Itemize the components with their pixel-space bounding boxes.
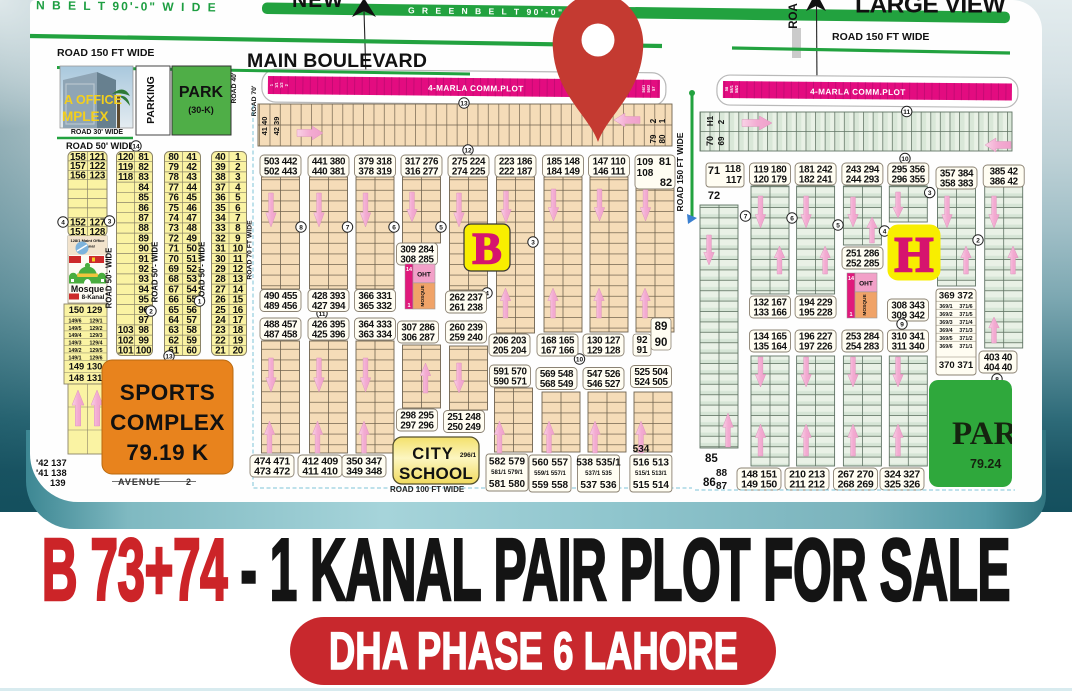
svg-text:69: 69 (717, 136, 726, 145)
svg-text:42 39: 42 39 (272, 117, 281, 136)
svg-text:N B E L T 90'-0" W I D E: N B E L T 90'-0" W I D E (36, 0, 218, 14)
svg-text:369/6: 369/6 (939, 344, 952, 350)
svg-text:2: 2 (717, 119, 726, 124)
svg-text:440 381: 440 381 (312, 167, 346, 178)
svg-text:70: 70 (705, 136, 715, 146)
svg-text:H: H (895, 226, 934, 282)
svg-text:386 42: 386 42 (990, 177, 1019, 188)
svg-text:489 456: 489 456 (264, 301, 298, 312)
svg-text:ROAD 50'- WIDE: ROAD 50'- WIDE (105, 248, 114, 309)
svg-text:109: 109 (637, 157, 654, 168)
svg-text:149 150: 149 150 (741, 479, 777, 491)
svg-text:ROAD 150 FT WIDE: ROAD 150 FT WIDE (675, 132, 685, 211)
svg-text:182 241: 182 241 (799, 175, 833, 186)
svg-text:88: 88 (716, 468, 728, 479)
svg-text:OHT: OHT (859, 281, 873, 288)
svg-text:195 228: 195 228 (799, 308, 833, 319)
svg-text:MOSQUE: MOSQUE (420, 284, 426, 306)
svg-text:ROAD 150 FT WIDE: ROAD 150 FT WIDE (832, 31, 929, 43)
svg-text:13: 13 (165, 353, 173, 360)
svg-text:135 164: 135 164 (753, 342, 787, 353)
svg-text:250 249: 250 249 (447, 422, 481, 433)
svg-text:SCHOOL: SCHOOL (399, 464, 473, 483)
svg-text:ROAD 40': ROAD 40' (231, 72, 238, 103)
svg-text:14: 14 (132, 143, 140, 150)
svg-text:MOSQUE: MOSQUE (862, 293, 868, 315)
svg-text:ROAD 50'- WIDE: ROAD 50'- WIDE (151, 242, 160, 303)
svg-text:538 535/1: 538 535/1 (576, 458, 621, 469)
svg-text:268 269: 268 269 (838, 479, 874, 491)
svg-text:ROAD 50' WIDE: ROAD 50' WIDE (66, 141, 135, 151)
svg-text:524 505: 524 505 (634, 377, 668, 388)
svg-text:91: 91 (636, 345, 648, 356)
svg-text:79: 79 (649, 134, 658, 143)
svg-text:11: 11 (903, 109, 910, 116)
svg-text:7: 7 (744, 213, 748, 220)
svg-text:274 225: 274 225 (452, 167, 486, 178)
svg-text:7: 7 (346, 224, 350, 231)
svg-text:139: 139 (50, 478, 66, 488)
svg-text:AVENUE: AVENUE (118, 477, 161, 487)
svg-text:21: 21 (215, 346, 226, 357)
svg-text:197 226: 197 226 (799, 342, 833, 353)
svg-text:118: 118 (118, 172, 134, 183)
svg-text:ROA: ROA (788, 3, 800, 29)
svg-text:146 111: 146 111 (593, 167, 626, 178)
svg-text:128/1 Maint Office: 128/1 Maint Office (70, 238, 105, 243)
svg-text:'42 137: '42 137 (36, 458, 67, 468)
svg-text:411 410: 411 410 (302, 466, 338, 478)
svg-text:8: 8 (299, 224, 303, 231)
svg-text:79.19 K: 79.19 K (126, 440, 209, 465)
svg-text:90: 90 (655, 337, 668, 349)
svg-text:559 558: 559 558 (532, 480, 569, 491)
svg-text:404 40: 404 40 (984, 363, 1013, 374)
svg-text:259 240: 259 240 (449, 333, 483, 344)
svg-text:ROAD 50'- WIDE: ROAD 50'- WIDE (198, 242, 207, 303)
svg-text:41 40: 41 40 (260, 117, 269, 136)
svg-text:20: 20 (233, 346, 244, 357)
svg-text:358 383: 358 383 (940, 179, 974, 190)
svg-text:8-Kanal: 8-Kanal (82, 294, 105, 301)
svg-text:487 458: 487 458 (264, 330, 298, 341)
svg-text:PARK: PARK (179, 84, 224, 101)
svg-text:296/1: 296/1 (460, 452, 477, 459)
svg-text:2: 2 (649, 118, 658, 123)
svg-text:12: 12 (464, 147, 472, 154)
svg-text:425 396: 425 396 (312, 330, 346, 341)
svg-text:118: 118 (725, 164, 742, 175)
svg-text:516 513: 516 513 (633, 458, 670, 469)
svg-text:3: 3 (928, 190, 932, 197)
svg-text:ROAD 30' WIDE: ROAD 30' WIDE (71, 129, 124, 136)
svg-text:254 283: 254 283 (846, 342, 880, 353)
svg-text:ROAD 70': ROAD 70' (251, 85, 258, 116)
svg-text:1: 1 (198, 298, 202, 305)
svg-text:(30-K): (30-K) (188, 105, 214, 115)
svg-text:SPORTS: SPORTS (120, 380, 216, 405)
svg-text:100: 100 (136, 346, 152, 357)
svg-text:71: 71 (708, 165, 720, 177)
svg-text:325 326: 325 326 (884, 479, 920, 491)
svg-text:2: 2 (976, 237, 980, 244)
svg-text:123: 123 (90, 171, 106, 182)
svg-text:OHT: OHT (417, 272, 431, 279)
svg-text:581/1 579/1: 581/1 579/1 (491, 470, 523, 476)
svg-text:6: 6 (392, 224, 396, 231)
svg-text:371/1: 371/1 (959, 344, 972, 350)
svg-text:205 204: 205 204 (493, 346, 527, 357)
svg-text:211 212: 211 212 (789, 479, 825, 491)
svg-text:559/1 557/1: 559/1 557/1 (534, 471, 566, 477)
svg-text:427 394: 427 394 (312, 301, 346, 312)
svg-text:14: 14 (848, 276, 855, 282)
svg-text:1: 1 (658, 118, 667, 123)
svg-text:568 549: 568 549 (540, 379, 574, 390)
svg-text:60: 60 (186, 346, 197, 357)
svg-text:296 355: 296 355 (892, 175, 926, 186)
svg-text:4: 4 (883, 228, 887, 235)
svg-text:72: 72 (708, 190, 720, 202)
svg-text:Mosque: Mosque (71, 284, 104, 294)
svg-text:167 166: 167 166 (541, 346, 575, 357)
svg-text:86: 86 (703, 477, 716, 489)
svg-text:117: 117 (726, 175, 743, 186)
svg-text:378 319: 378 319 (358, 167, 392, 178)
svg-text:ROAD 100 FT WIDE: ROAD 100 FT WIDE (390, 485, 465, 494)
svg-text:560 557: 560 557 (532, 458, 569, 469)
svg-text:3: 3 (108, 218, 112, 225)
svg-text:502 443: 502 443 (264, 167, 298, 178)
svg-text:CITY: CITY (412, 445, 454, 463)
svg-text:311 340: 311 340 (892, 342, 926, 353)
svg-text:LARGE VIEW: LARGE VIEW (855, 0, 1007, 19)
svg-text:309 342: 309 342 (891, 311, 925, 322)
svg-text:590 571: 590 571 (493, 377, 527, 388)
svg-text:PARKING: PARKING (145, 76, 157, 124)
svg-text:316 277: 316 277 (405, 167, 439, 178)
svg-text:10: 10 (901, 156, 909, 163)
svg-text:NEW: NEW (292, 0, 344, 12)
svg-text:1: 1 (407, 303, 410, 309)
svg-text:537/1 535: 537/1 535 (585, 471, 612, 477)
svg-text:COMPLEX: COMPLEX (110, 410, 225, 435)
svg-text:222 187: 222 187 (499, 167, 533, 178)
svg-text:369 372: 369 372 (939, 291, 973, 302)
svg-text:252 285: 252 285 (846, 259, 880, 270)
svg-text:129 128: 129 128 (587, 346, 621, 357)
svg-text:581 580: 581 580 (489, 479, 526, 490)
svg-text:85: 85 (705, 453, 718, 465)
svg-text:1: 1 (849, 312, 852, 318)
svg-text:5: 5 (439, 224, 443, 231)
svg-text:537 536: 537 536 (580, 480, 617, 491)
svg-text:120 179: 120 179 (753, 175, 787, 186)
svg-text:2: 2 (186, 477, 191, 487)
svg-text:2: 2 (149, 308, 153, 315)
svg-text:82: 82 (660, 177, 672, 189)
svg-text:4: 4 (61, 219, 65, 226)
svg-text:349 348: 349 348 (346, 466, 382, 478)
svg-text:A OFFICE: A OFFICE (64, 93, 122, 107)
svg-text:515 514: 515 514 (633, 480, 670, 491)
svg-text:4-MARLA COMM.PLOT: 4-MARLA COMM.PLOT (428, 84, 524, 94)
svg-text:582 579: 582 579 (489, 457, 526, 468)
svg-text:80: 80 (658, 134, 667, 143)
svg-text:ROAD 70 FT WIDE: ROAD 70 FT WIDE (247, 220, 254, 280)
svg-text:3: 3 (531, 239, 535, 246)
svg-text:133 166: 133 166 (753, 308, 787, 319)
svg-text:ROAD 150 FT WIDE: ROAD 150 FT WIDE (57, 47, 154, 59)
svg-text:156: 156 (70, 171, 86, 182)
svg-text:534: 534 (633, 444, 650, 455)
svg-text:244 293: 244 293 (846, 175, 880, 186)
svg-text:184 149: 184 149 (546, 167, 580, 178)
svg-text:149 130: 149 130 (69, 362, 103, 372)
svg-text:13: 13 (460, 100, 468, 107)
svg-text:261 238: 261 238 (449, 303, 483, 314)
svg-text:108: 108 (637, 168, 654, 179)
svg-text:297 296: 297 296 (400, 421, 434, 432)
svg-text:515/1 513/1: 515/1 513/1 (635, 471, 667, 477)
svg-text:365 332: 365 332 (358, 301, 392, 312)
svg-text:MPLEX: MPLEX (62, 109, 109, 124)
svg-text:H1: H1 (706, 115, 715, 126)
svg-text:9: 9 (900, 321, 904, 328)
svg-text:101: 101 (118, 346, 134, 357)
svg-text:148 131: 148 131 (69, 373, 103, 383)
svg-text:306 287: 306 287 (401, 333, 435, 344)
svg-text:14: 14 (406, 267, 413, 273)
svg-text:4-MARLA COMM.PLOT: 4-MARLA COMM.PLOT (810, 87, 906, 97)
svg-text:PARK: PARK (952, 416, 1042, 452)
svg-text:5: 5 (836, 222, 840, 229)
svg-text:10: 10 (576, 356, 584, 363)
svg-text:546 527: 546 527 (587, 379, 621, 390)
svg-text:79.24: 79.24 (970, 457, 1001, 471)
svg-text:6: 6 (790, 215, 794, 222)
svg-text:81: 81 (659, 156, 671, 168)
svg-text:58/2: 58/2 (734, 84, 739, 93)
svg-text:89: 89 (655, 321, 668, 333)
svg-text:473 472: 473 472 (254, 466, 290, 478)
svg-text:150 129: 150 129 (69, 305, 103, 315)
svg-text:'41 138: '41 138 (36, 468, 67, 478)
svg-text:370 371: 370 371 (939, 360, 974, 371)
svg-text:363 334: 363 334 (358, 330, 392, 341)
svg-text:B: B (472, 224, 501, 273)
